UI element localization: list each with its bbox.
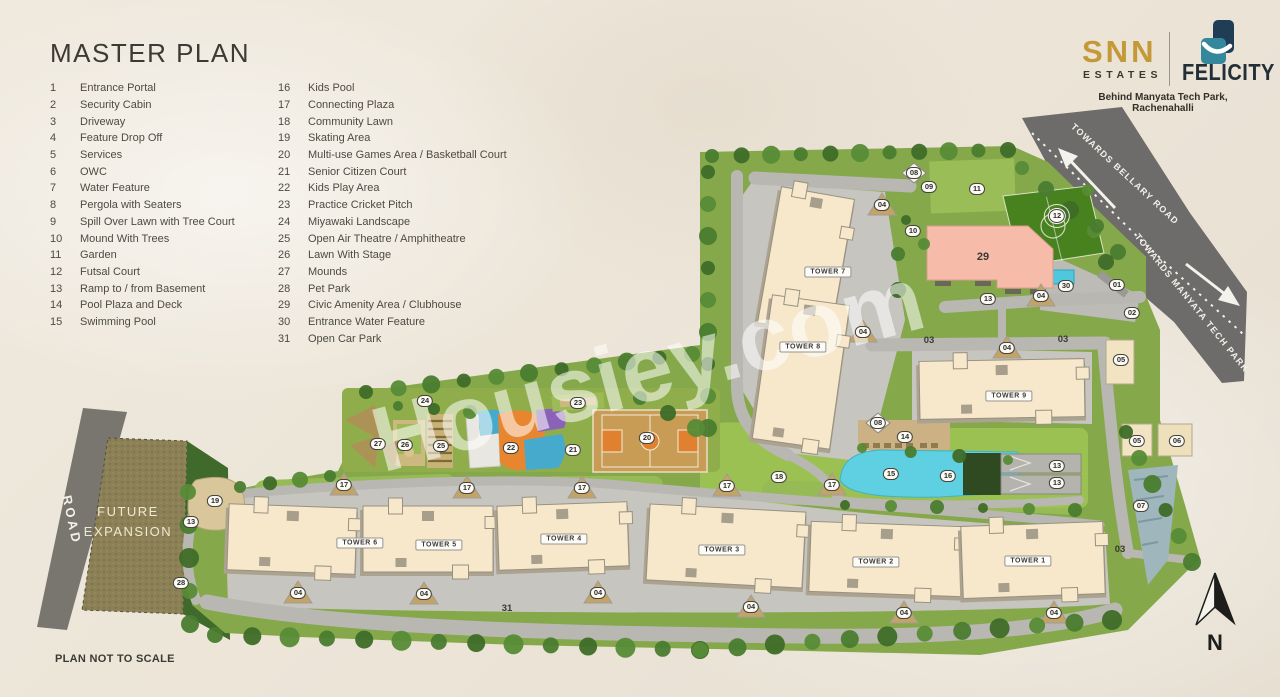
legend-item: 23Practice Cricket Pitch (278, 197, 507, 214)
tree-icon (1038, 181, 1054, 197)
tree-icon (1015, 161, 1029, 175)
tree-icon (699, 227, 717, 245)
tree-icon (990, 618, 1010, 638)
tree-icon (392, 631, 412, 651)
page-title: MASTER PLAN (50, 38, 250, 69)
plan-marker: 29 (974, 252, 992, 262)
ramp-hedge (963, 453, 1001, 495)
legend-item: 15Swimming Pool (50, 314, 235, 331)
legend-item: 20Multi-use Games Area / Basketball Cour… (278, 147, 507, 164)
plan-marker: 04 (874, 199, 890, 211)
plan-marker: 13 (1049, 460, 1065, 472)
legend-number: 25 (278, 233, 308, 245)
legend-label: Spill Over Lawn with Tree Court (80, 216, 235, 228)
tower-label: TOWER 5 (415, 540, 462, 551)
legend-number: 22 (278, 182, 308, 194)
tree-icon (1090, 219, 1104, 233)
tree-icon (1143, 475, 1161, 493)
legend-label: Mounds (308, 266, 347, 278)
tree-icon (917, 626, 933, 642)
plan-marker: 05 (1129, 435, 1145, 447)
legend-item: 22Kids Play Area (278, 180, 507, 197)
legend-number: 12 (50, 266, 80, 278)
tree-icon (1029, 618, 1045, 634)
tree-icon (234, 481, 246, 493)
plan-marker: 31 (499, 604, 516, 614)
legend-label: Community Lawn (308, 116, 393, 128)
plan-marker: 11 (969, 183, 985, 195)
tower-label: TOWER 1 (1004, 556, 1051, 567)
legend-number: 21 (278, 166, 308, 178)
legend-number: 2 (50, 99, 80, 111)
plan-marker: 13 (980, 293, 996, 305)
tree-icon (885, 500, 897, 512)
tree-icon (1183, 553, 1201, 571)
tree-icon (734, 147, 750, 163)
legend-label: Multi-use Games Area / Basketball Court (308, 149, 507, 161)
tree-icon (655, 641, 671, 657)
plan-marker: 20 (639, 432, 655, 444)
plan-marker: 04 (855, 326, 871, 338)
plan-marker: 06 (1169, 435, 1185, 447)
legend-label: Futsal Court (80, 266, 140, 278)
brand-tagline: Behind Manyata Tech Park, Rachenahalli (1068, 92, 1258, 114)
future-expansion-label: FUTURE EXPANSION (63, 502, 193, 542)
legend-item: 9Spill Over Lawn with Tree Court (50, 214, 235, 231)
plan-marker: 08 (906, 167, 922, 179)
plan-marker: 08 (870, 417, 886, 429)
legend-number: 17 (278, 99, 308, 111)
tree-icon (263, 476, 277, 490)
legend-item: 30Entrance Water Feature (278, 314, 507, 331)
legend-label: Connecting Plaza (308, 99, 394, 111)
tree-icon (467, 634, 485, 652)
plan-marker: 02 (1124, 307, 1140, 319)
plan-marker: 13 (1049, 477, 1065, 489)
brand-block: SNN ESTATES FELICITY Behind Manyata Tech… (1068, 22, 1258, 112)
plan-marker: 22 (503, 442, 519, 454)
plan-marker: 04 (896, 607, 912, 619)
legend-item: 10Mound With Trees (50, 230, 235, 247)
plan-marker: 21 (565, 444, 581, 456)
plan-marker: 13 (183, 516, 199, 528)
legend-number: 7 (50, 182, 80, 194)
legend-number: 10 (50, 233, 80, 245)
legend-number: 30 (278, 316, 308, 328)
legend-label: Civic Amenity Area / Clubhouse (308, 299, 461, 311)
legend-item: 8Pergola with Seaters (50, 197, 235, 214)
snn-estates-label: ESTATES (1083, 69, 1162, 81)
tree-icon (1131, 450, 1147, 466)
legend-item: 13Ramp to / from Basement (50, 280, 235, 297)
legend-label: Open Air Theatre / Amphitheatre (308, 233, 466, 245)
tree-icon (940, 142, 958, 160)
plan-marker: 16 (940, 470, 956, 482)
legend-number: 19 (278, 132, 308, 144)
plan-marker: 28 (173, 577, 189, 589)
legend-label: Swimming Pool (80, 316, 156, 328)
tower-label: TOWER 6 (336, 538, 383, 549)
plan-note: PLAN NOT TO SCALE (55, 653, 175, 665)
legend-label: Entrance Portal (80, 82, 156, 94)
tree-icon (615, 638, 635, 658)
tree-icon (504, 634, 524, 654)
tree-icon (729, 638, 747, 656)
legend-number: 31 (278, 333, 308, 345)
plan-marker: 04 (590, 587, 606, 599)
tree-icon (701, 165, 715, 179)
legend-label: Garden (80, 249, 117, 261)
plan-marker: 24 (417, 395, 433, 407)
tree-icon (953, 622, 971, 640)
tree-icon (1066, 614, 1084, 632)
plan-marker: 23 (570, 397, 586, 409)
plan-marker: 10 (905, 225, 921, 237)
legend-item: 26Lawn With Stage (278, 247, 507, 264)
tower-label: TOWER 4 (540, 534, 587, 545)
tree-icon (705, 149, 719, 163)
north-letter: N (1207, 630, 1223, 655)
legend-label: Pet Park (308, 283, 350, 295)
tree-icon (822, 146, 838, 162)
legend-item: 11Garden (50, 247, 235, 264)
legend-number: 6 (50, 166, 80, 178)
plan-marker: 27 (370, 438, 386, 450)
plan-marker: 18 (771, 471, 787, 483)
legend-number: 13 (50, 283, 80, 295)
plan-marker: 25 (433, 440, 449, 452)
plan-marker: 17 (336, 479, 352, 491)
tree-icon (765, 635, 785, 655)
plan-marker: 03 (1055, 335, 1072, 345)
plan-marker: 04 (416, 588, 432, 600)
tower-label: TOWER 8 (779, 342, 826, 353)
legend-column-1: 1Entrance Portal2Security Cabin3Driveway… (50, 80, 235, 330)
legend-number: 20 (278, 149, 308, 161)
tree-icon (207, 627, 223, 643)
tree-icon (181, 615, 199, 633)
tree-icon (901, 215, 911, 225)
legend-item: 28Pet Park (278, 280, 507, 297)
tree-icon (841, 630, 859, 648)
tree-icon (1102, 610, 1122, 630)
tree-icon (292, 472, 308, 488)
felicity-logo-icon (1190, 18, 1240, 66)
legend-label: Lawn With Stage (308, 249, 391, 261)
legend-item: 2Security Cabin (50, 97, 235, 114)
tree-icon (243, 627, 261, 645)
tree-icon (930, 500, 944, 514)
legend-item: 3Driveway (50, 113, 235, 130)
tree-icon (319, 631, 335, 647)
legend-label: Senior Citizen Court (308, 166, 406, 178)
legend-number: 28 (278, 283, 308, 295)
legend-label: Ramp to / from Basement (80, 283, 205, 295)
tree-icon (543, 637, 559, 653)
legend-label: Skating Area (308, 132, 370, 144)
plan-marker: 04 (743, 601, 759, 613)
plan-marker: 03 (921, 336, 938, 346)
legend-item: 19Skating Area (278, 130, 507, 147)
tree-icon (762, 146, 780, 164)
plan-marker: 17 (824, 479, 840, 491)
tree-icon (1159, 503, 1173, 517)
tree-icon (1098, 254, 1114, 270)
plan-marker: 30 (1058, 280, 1074, 292)
legend-label: Practice Cricket Pitch (308, 199, 413, 211)
tree-icon (280, 627, 300, 647)
legend-item: 4Feature Drop Off (50, 130, 235, 147)
legend-number: 3 (50, 116, 80, 128)
legend-label: Mound With Trees (80, 233, 169, 245)
legend-label: Driveway (80, 116, 125, 128)
plan-marker: 04 (290, 587, 306, 599)
plan-marker: 04 (1046, 607, 1062, 619)
tree-icon (1068, 503, 1082, 517)
tree-icon (978, 503, 988, 513)
legend-number: 23 (278, 199, 308, 211)
plan-marker: 14 (897, 431, 913, 443)
tree-icon (851, 144, 869, 162)
tree-icon (971, 144, 985, 158)
plan-marker: 05 (1113, 354, 1129, 366)
tree-icon (701, 261, 715, 275)
legend-number: 5 (50, 149, 80, 161)
tower-label: TOWER 3 (698, 545, 745, 556)
legend-number: 8 (50, 199, 80, 211)
legend-number: 27 (278, 266, 308, 278)
tree-icon (877, 626, 897, 646)
tree-icon (840, 500, 850, 510)
legend-label: OWC (80, 166, 107, 178)
legend-number: 4 (50, 132, 80, 144)
tower-label: TOWER 7 (804, 267, 851, 278)
legend-item: 24Miyawaki Landscape (278, 214, 507, 231)
legend-label: Pergola with Seaters (80, 199, 182, 211)
tree-icon (180, 484, 196, 500)
legend-number: 24 (278, 216, 308, 228)
legend-label: Kids Play Area (308, 182, 380, 194)
tree-icon (911, 144, 927, 160)
legend-item: 16Kids Pool (278, 80, 507, 97)
north-arrow: N (1196, 573, 1234, 655)
felicity-wordmark: FELICITY (1182, 60, 1275, 86)
tree-icon (905, 446, 917, 458)
tree-icon (918, 238, 930, 250)
legend-item: 17Connecting Plaza (278, 97, 507, 114)
tree-icon (794, 147, 808, 161)
tree-icon (431, 634, 447, 650)
legend-item: 31Open Car Park (278, 330, 507, 347)
legend-item: 5Services (50, 147, 235, 164)
legend-column-2: 16Kids Pool17Connecting Plaza18Community… (278, 80, 507, 347)
tree-icon (579, 638, 597, 656)
legend-label: Feature Drop Off (80, 132, 162, 144)
brand-divider (1169, 32, 1170, 86)
tree-icon (355, 631, 373, 649)
tree-icon (1000, 142, 1016, 158)
master-plan-page: N MASTER PLAN 1Entrance Portal2Security … (0, 0, 1280, 697)
legend-label: Open Car Park (308, 333, 381, 345)
legend-item: 14Pool Plaza and Deck (50, 297, 235, 314)
legend-number: 29 (278, 299, 308, 311)
plan-marker: 19 (207, 495, 223, 507)
plan-marker: 17 (459, 482, 475, 494)
legend-item: 29Civic Amenity Area / Clubhouse (278, 297, 507, 314)
snn-logo: SNN (1082, 34, 1156, 70)
legend-number: 1 (50, 82, 80, 94)
legend-item: 6OWC (50, 163, 235, 180)
tree-icon (692, 642, 708, 658)
legend-label: Pool Plaza and Deck (80, 299, 182, 311)
legend-label: Miyawaki Landscape (308, 216, 410, 228)
tree-icon (700, 196, 716, 212)
plan-marker: 15 (883, 468, 899, 480)
legend-label: Services (80, 149, 122, 161)
tree-icon (1003, 455, 1013, 465)
legend-number: 16 (278, 82, 308, 94)
plan-marker: 17 (574, 482, 590, 494)
tree-icon (857, 443, 867, 453)
legend-number: 15 (50, 316, 80, 328)
tree-icon (804, 634, 820, 650)
legend-item: 18Community Lawn (278, 113, 507, 130)
plan-marker: 04 (1033, 290, 1049, 302)
plan-marker: 09 (921, 181, 937, 193)
legend-number: 18 (278, 116, 308, 128)
legend-item: 25Open Air Theatre / Amphitheatre (278, 230, 507, 247)
tree-icon (179, 548, 199, 568)
tower-label: TOWER 2 (852, 557, 899, 568)
legend-item: 27Mounds (278, 264, 507, 281)
legend-item: 21Senior Citizen Court (278, 163, 507, 180)
legend-item: 12Futsal Court (50, 264, 235, 281)
plan-marker: 03 (1112, 545, 1129, 555)
tree-icon (883, 145, 897, 159)
legend-label: Entrance Water Feature (308, 316, 425, 328)
legend-label: Security Cabin (80, 99, 152, 111)
tree-icon (1082, 184, 1094, 196)
tree-icon (324, 470, 336, 482)
legend-number: 11 (50, 249, 80, 261)
legend-item: 7Water Feature (50, 180, 235, 197)
tree-icon (1171, 528, 1187, 544)
plan-marker: 07 (1133, 500, 1149, 512)
legend-label: Kids Pool (308, 82, 354, 94)
plan-marker: 01 (1109, 279, 1125, 291)
plan-marker: 26 (397, 439, 413, 451)
legend-number: 9 (50, 216, 80, 228)
tree-icon (952, 449, 966, 463)
legend-number: 14 (50, 299, 80, 311)
tree-icon (1023, 503, 1035, 515)
legend-item: 1Entrance Portal (50, 80, 235, 97)
legend-number: 26 (278, 249, 308, 261)
tower-label: TOWER 9 (985, 391, 1032, 402)
legend-label: Water Feature (80, 182, 150, 194)
plan-marker: 04 (999, 342, 1015, 354)
pool-loungers (862, 443, 938, 448)
plan-marker: 17 (719, 480, 735, 492)
tower-building (916, 350, 1090, 426)
tree-icon (687, 419, 705, 437)
